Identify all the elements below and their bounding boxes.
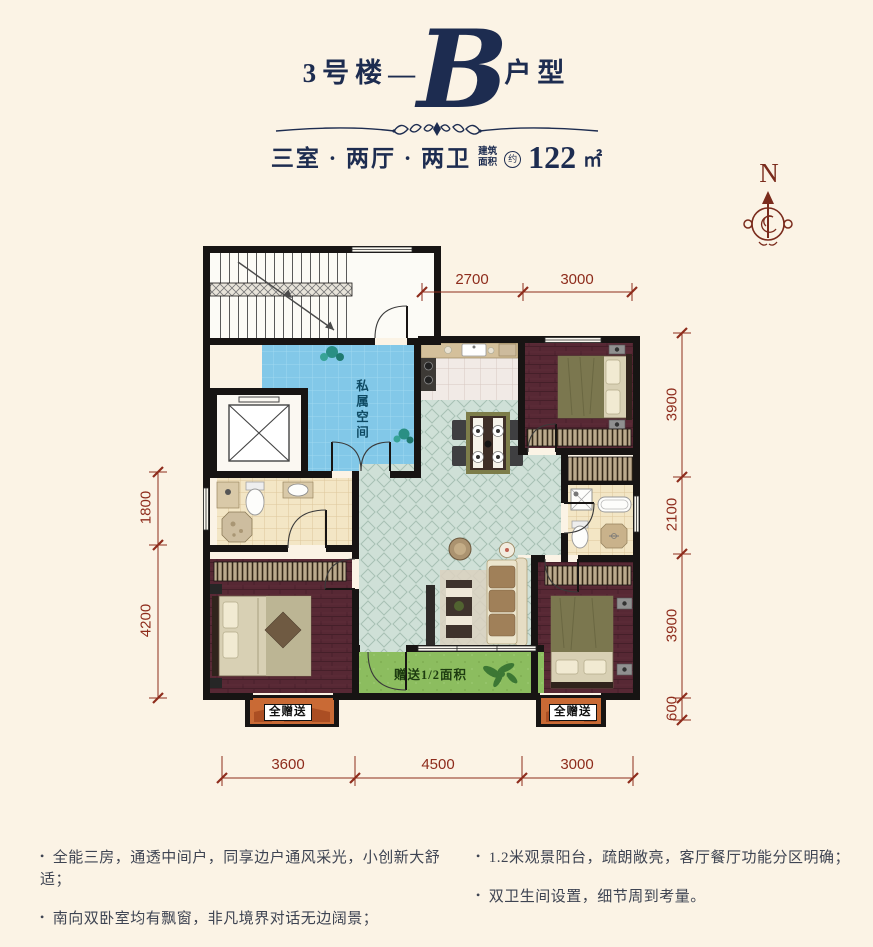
- floorplan-page: 3号楼 — B 户型 三室 · 两厅 · 两卫 建筑 面积 约 122 ㎡: [0, 0, 873, 940]
- feature-item: 南向双卧室均有飘窗，非凡境界对话无边阔景；: [40, 909, 464, 931]
- balcony-gift-label: 赠送1/2面积: [394, 664, 467, 683]
- feature-item: 1.2米观景阳台，疏朗敞亮，客厅餐厅功能分区明确；: [476, 848, 868, 870]
- dim-top-2: 3000: [547, 271, 607, 288]
- dim-right-1: 3900: [664, 373, 681, 437]
- bay-gift-label-right: 全赠送: [549, 704, 597, 721]
- dim-top-1: 2700: [442, 271, 502, 288]
- dim-left-2: 4200: [138, 589, 155, 653]
- dim-left-1: 1800: [138, 476, 155, 540]
- floorplan-drawing: [0, 0, 873, 940]
- room-bedroom-left: [210, 559, 352, 693]
- elevator: [210, 388, 308, 478]
- feature-list-right: 1.2米观景阳台，疏朗敞亮，客厅餐厅功能分区明确； 双卫生间设置，细节周到考量。: [476, 848, 868, 926]
- wardrobe-icon: [527, 429, 631, 446]
- toilet-icon: [572, 526, 588, 548]
- dim-right-2: 2100: [664, 483, 681, 547]
- dim-right-4: 600: [664, 677, 681, 741]
- bay-gift-label-left: 全赠送: [264, 704, 312, 721]
- dim-bottom-1: 3600: [258, 756, 318, 773]
- room-label-flex-space: 私属空间: [353, 379, 371, 455]
- stairwell: [210, 253, 434, 338]
- room-bedroom-top-right: [525, 343, 633, 448]
- closet-icon: [568, 457, 633, 481]
- feature-item: 全能三房，通透中间户，同享边户通风采光，小创新大舒适；: [40, 848, 464, 892]
- toilet-icon: [246, 489, 264, 515]
- dim-bottom-2: 4500: [408, 756, 468, 773]
- room-bedroom-bottom-right: [538, 562, 633, 693]
- compass-rose-icon: [744, 191, 792, 245]
- wardrobe-icon: [545, 566, 631, 585]
- shower-icon: [222, 512, 252, 542]
- room-bathroom-main: [217, 478, 352, 545]
- feature-item: 双卫生间设置，细节周到考量。: [476, 887, 868, 909]
- feature-list-left: 全能三房，通透中间户，同享边户通风采光，小创新大舒适； 南向双卧室均有飘窗，非凡…: [40, 848, 464, 947]
- room-kitchen: [421, 343, 518, 400]
- dim-right-3: 3900: [664, 594, 681, 658]
- room-bathroom-second: [568, 457, 633, 555]
- tv-cabinet-icon: [426, 585, 435, 653]
- basin-icon: [288, 484, 308, 496]
- dim-bottom-3: 3000: [547, 756, 607, 773]
- bathtub-icon: [598, 497, 631, 512]
- north-label: N: [754, 158, 784, 189]
